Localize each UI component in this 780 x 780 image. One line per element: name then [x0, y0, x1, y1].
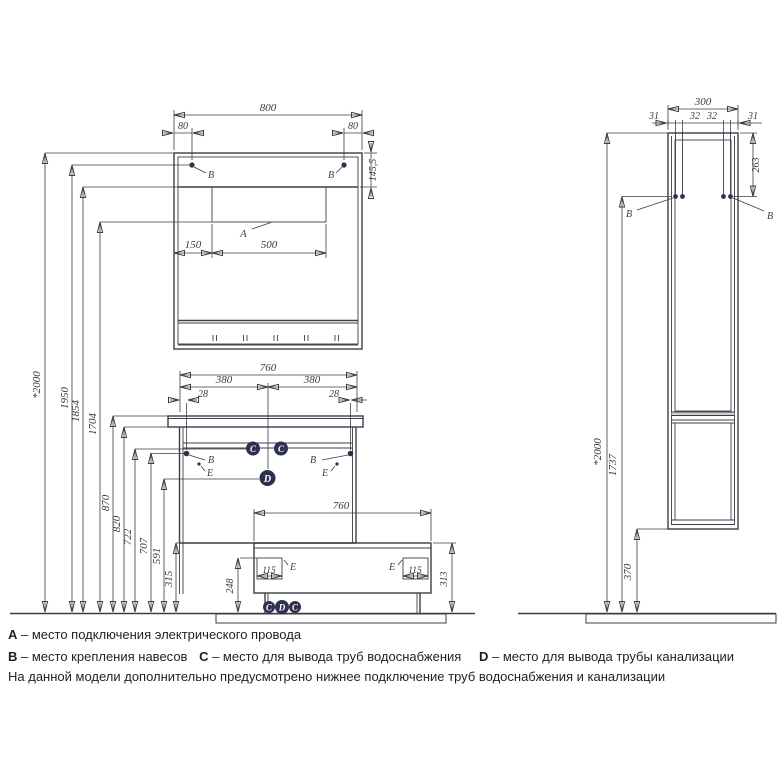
dim-base-115-right: 115 [408, 566, 422, 576]
dim-vanity-380-left: 380 [215, 374, 233, 386]
label-b-vanity-right: B [310, 455, 316, 466]
dim-mirror-500: 500 [261, 239, 278, 251]
svg-text:D: D [263, 474, 271, 485]
e-point-vanity-right [335, 462, 338, 465]
electric-zone-hatch [212, 187, 326, 222]
b-point-vanity-right [348, 451, 354, 457]
legend-text-a: – место подключения электрического прово… [21, 627, 301, 642]
dim-vanity-28-left: 28 [198, 389, 208, 400]
dim-1854: 1854 [70, 400, 82, 423]
dim-column-263: 263 [751, 158, 762, 173]
legend-text-d: – место для вывода трубы канализации [492, 649, 734, 664]
b-point-vanity-left [184, 451, 190, 457]
legend-key-a: А [8, 627, 17, 642]
b-point-column-3 [721, 194, 726, 199]
dim-591: 591 [151, 548, 163, 565]
label-a-mirror: A [239, 228, 247, 240]
svg-text:D: D [278, 603, 286, 613]
label-e-vanity-right: E [321, 468, 328, 479]
label-e-base-left: E [289, 562, 296, 573]
dim-column-31-left: 31 [648, 111, 659, 122]
svg-text:C: C [266, 603, 273, 613]
dim-1704: 1704 [87, 413, 99, 436]
legend-note: На данной модели дополнительно предусмот… [8, 666, 665, 687]
dim-column-370: 370 [622, 563, 634, 581]
ground-line [10, 614, 776, 624]
dim-vanity-28-right: 28 [329, 389, 339, 400]
dim-mirror-150: 150 [185, 239, 202, 251]
legend-key-c: С [199, 649, 208, 664]
b-point-column-1 [673, 194, 678, 199]
e-point-vanity-left [197, 462, 200, 465]
b-point-column-4 [728, 194, 733, 199]
b-point-mirror-right [341, 162, 346, 167]
dim-column-300: 300 [694, 96, 712, 108]
label-e-vanity-left: E [206, 468, 213, 479]
label-b-mirror-left: B [208, 170, 214, 181]
dim-base-115-left: 115 [262, 566, 276, 576]
label-b-column-right: B [767, 211, 773, 222]
label-b-column-left: B [626, 209, 632, 220]
dim-base-248: 248 [225, 579, 236, 594]
label-b-vanity-left: B [208, 455, 214, 466]
dim-vanity-760: 760 [260, 362, 277, 374]
dim-315: 315 [163, 570, 175, 588]
legend-line-bcd: В – место крепления навесов С – место дл… [8, 646, 734, 667]
dim-vanity-380-right: 380 [303, 374, 321, 386]
b-point-mirror-left [189, 162, 194, 167]
label-b-mirror-right: B [328, 170, 334, 181]
b-point-column-2 [680, 194, 685, 199]
dim-column-2000: *2000 [592, 438, 604, 466]
column-upper-door [675, 140, 731, 411]
legend-key-d: D [479, 649, 488, 664]
svg-text:C: C [292, 603, 299, 613]
dim-column-32-right: 32 [706, 111, 717, 122]
column-lower-door [675, 423, 731, 520]
vanity-front-view: 760 380 380 28 28 B B E E C C D [168, 362, 367, 594]
legend-key-b: В [8, 649, 17, 664]
dim-base-313: 313 [439, 572, 450, 588]
legend-text-c: – место для вывода труб водоснабжения [212, 649, 461, 664]
dim-mirror-80-left: 80 [178, 121, 188, 132]
dim-mirror-145: 145,5 [368, 159, 379, 182]
label-e-base-right: E [388, 562, 395, 573]
base-unit-view: 115 115 E E 760 248 313 C D C [225, 500, 456, 614]
column-side-view: 300 31 32 32 31 263 B B *2000 1737 370 [592, 96, 773, 612]
dim-column-1737: 1737 [607, 454, 619, 477]
dim-mirror-800: 800 [260, 102, 277, 114]
mirror-front-view: A B B 800 80 80 145,5 150 500 [163, 102, 379, 349]
dim-column-31-right: 31 [747, 111, 758, 122]
svg-text:C: C [250, 444, 257, 454]
legend-text-b: – место крепления навесов [21, 649, 187, 664]
dim-870: 870 [100, 494, 112, 511]
dim-base-760: 760 [333, 500, 350, 512]
dim-mirror-80-right: 80 [348, 121, 358, 132]
dim-2000-left: *2000 [31, 371, 43, 399]
svg-text:C: C [278, 444, 285, 454]
legend-line-a: А – место подключения электрического про… [8, 624, 301, 645]
installation-diagram: *2000 1950 1854 1704 870 820 722 707 591… [0, 0, 780, 780]
dim-707: 707 [138, 537, 150, 554]
dim-722: 722 [122, 528, 134, 545]
dim-column-32-left: 32 [689, 111, 700, 122]
